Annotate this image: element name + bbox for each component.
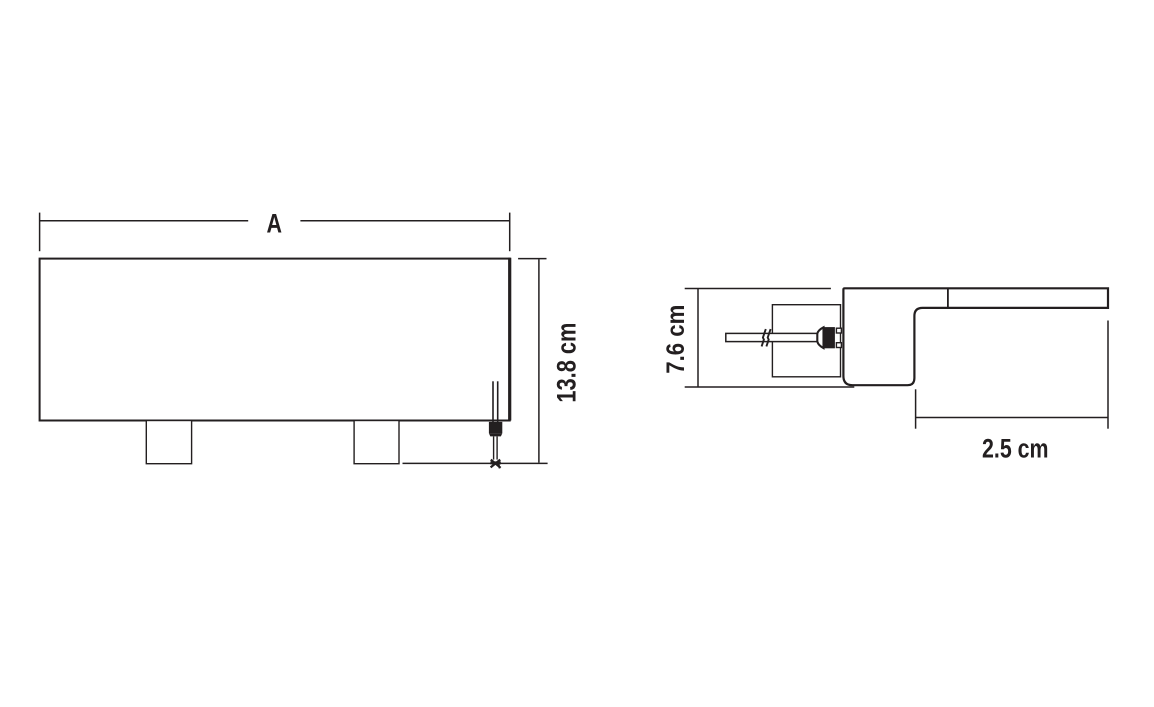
svg-text:A: A <box>266 208 282 238</box>
svg-text:13.8 cm: 13.8 cm <box>551 323 581 403</box>
svg-text:7.6 cm: 7.6 cm <box>662 305 690 374</box>
svg-text:2.5 cm: 2.5 cm <box>982 433 1049 463</box>
